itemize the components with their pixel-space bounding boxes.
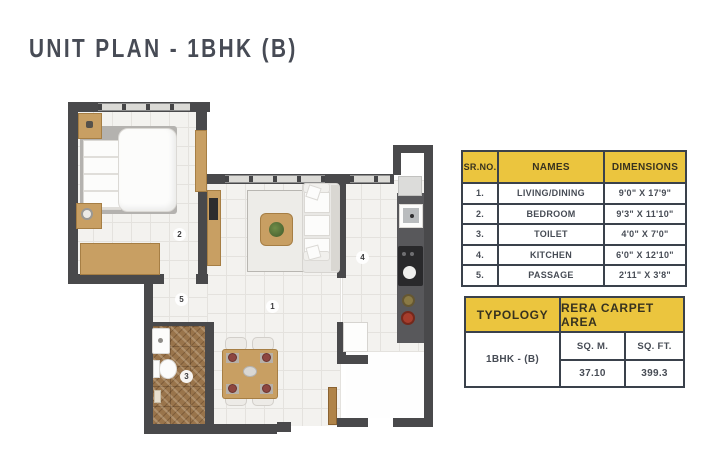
- kitchen-window: [350, 175, 390, 183]
- sofa-cushion: [304, 215, 330, 236]
- cooking-pot: [401, 311, 415, 325]
- plant: [269, 222, 284, 237]
- wall-duct-left: [393, 145, 401, 175]
- wc-bowl: [159, 359, 177, 379]
- sqft-value: 399.3: [624, 361, 683, 386]
- wall-bottom-step: [277, 422, 291, 432]
- floor-plan: 1 2 3 4 5: [60, 88, 438, 438]
- plate: [262, 353, 271, 362]
- typology-header: TYPOLOGY: [466, 298, 559, 331]
- nightstand-decor: [86, 121, 93, 128]
- typology-value: 1BHK - (B): [466, 333, 559, 386]
- room-label-bedroom: 2: [173, 228, 186, 241]
- wall-right: [424, 145, 433, 427]
- hob-knob: [402, 252, 406, 256]
- wardrobe: [195, 130, 207, 192]
- wall-bedroom-right-stub: [196, 102, 207, 130]
- wall-bedroom-living: [198, 188, 207, 284]
- row-name: PASSAGE: [497, 266, 603, 285]
- row-name: LIVING/DINING: [497, 184, 603, 203]
- area-values-row: 37.10 399.3: [561, 359, 683, 386]
- serving-bowl: [243, 366, 257, 377]
- table-row: 3. TOILET 4'0" X 7'0": [463, 223, 685, 244]
- sqm-value: 37.10: [561, 361, 624, 386]
- plate: [262, 384, 271, 393]
- typology-table: TYPOLOGY RERA CARPET AREA 1BHK - (B) SQ.…: [464, 296, 685, 388]
- wall-toilet-right: [205, 322, 214, 434]
- typology-body-row: 1BHK - (B) SQ. M. SQ. FT. 37.10 399.3: [466, 331, 683, 386]
- wall-entrance-bottom-left: [337, 418, 368, 427]
- bedroom-window: [98, 103, 190, 111]
- row-name: BEDROOM: [497, 205, 603, 224]
- wall-entrance-stub: [337, 355, 368, 364]
- bed-duvet: [118, 128, 177, 212]
- area-labels-row: SQ. M. SQ. FT.: [561, 333, 683, 359]
- room-label-toilet: 3: [180, 370, 193, 383]
- row-sr: 3.: [463, 225, 497, 244]
- wall-bottom-main: [144, 424, 277, 434]
- table-row: 2. BEDROOM 9'3" X 11'10": [463, 203, 685, 224]
- wall-toilet-top: [144, 322, 214, 326]
- row-sr: 2.: [463, 205, 497, 224]
- sqft-label: SQ. FT.: [624, 333, 683, 359]
- entrance-door: [328, 387, 337, 425]
- rera-carpet-area-header: RERA CARPET AREA: [559, 298, 683, 331]
- table-lamp: [81, 208, 93, 220]
- tv: [209, 198, 218, 220]
- dresser: [80, 243, 160, 275]
- wall-toilet-left: [144, 274, 153, 434]
- sqm-label: SQ. M.: [561, 333, 624, 359]
- row-dim: 2'11" X 3'8": [603, 266, 685, 285]
- table-row: 5. PASSAGE 2'11" X 3'8": [463, 264, 685, 285]
- row-dim: 9'3" X 11'10": [603, 205, 685, 224]
- area-cells: SQ. M. SQ. FT. 37.10 399.3: [559, 333, 683, 386]
- plate: [228, 353, 237, 362]
- bath-accessory: [154, 390, 161, 403]
- row-sr: 5.: [463, 266, 497, 285]
- sink-faucet: [410, 214, 414, 218]
- typology-header-row: TYPOLOGY RERA CARPET AREA: [466, 298, 683, 331]
- rooms-table-header-row: SR.NO. NAMES DIMENSIONS: [463, 152, 685, 182]
- table-row: 4. KITCHEN 6'0" X 12'10": [463, 244, 685, 265]
- table-row: 1. LIVING/DINING 9'0" X 17'9": [463, 182, 685, 203]
- sofa-back: [331, 185, 339, 271]
- plate: [228, 384, 237, 393]
- row-sr: 1.: [463, 184, 497, 203]
- wall-left: [68, 102, 78, 284]
- washbasin-drain: [158, 338, 163, 343]
- room-label-kitchen: 4: [356, 251, 369, 264]
- room-label-living: 1: [266, 300, 279, 313]
- row-dim: 9'0" X 17'9": [603, 184, 685, 203]
- room-label-passage: 5: [175, 293, 188, 306]
- row-name: KITCHEN: [497, 246, 603, 265]
- duct-floor: [401, 153, 424, 177]
- cooking-pot: [402, 294, 415, 307]
- header-dimensions: DIMENSIONS: [603, 152, 685, 182]
- shoe-cabinet: [343, 322, 368, 352]
- hob-burner: [403, 266, 416, 279]
- bed-mattress: [83, 140, 121, 210]
- page-title: UNIT PLAN - 1BHK (B): [29, 33, 298, 64]
- wall-entrance-bottom-right: [393, 418, 424, 427]
- fridge: [398, 176, 422, 196]
- rooms-table: SR.NO. NAMES DIMENSIONS 1. LIVING/DINING…: [461, 150, 687, 287]
- row-name: TOILET: [497, 225, 603, 244]
- living-window: [225, 175, 325, 183]
- row-dim: 4'0" X 7'0": [603, 225, 685, 244]
- header-sr-no: SR.NO.: [463, 152, 497, 182]
- hob-knob: [410, 252, 414, 256]
- header-names: NAMES: [497, 152, 603, 182]
- row-dim: 6'0" X 12'10": [603, 246, 685, 265]
- row-sr: 4.: [463, 246, 497, 265]
